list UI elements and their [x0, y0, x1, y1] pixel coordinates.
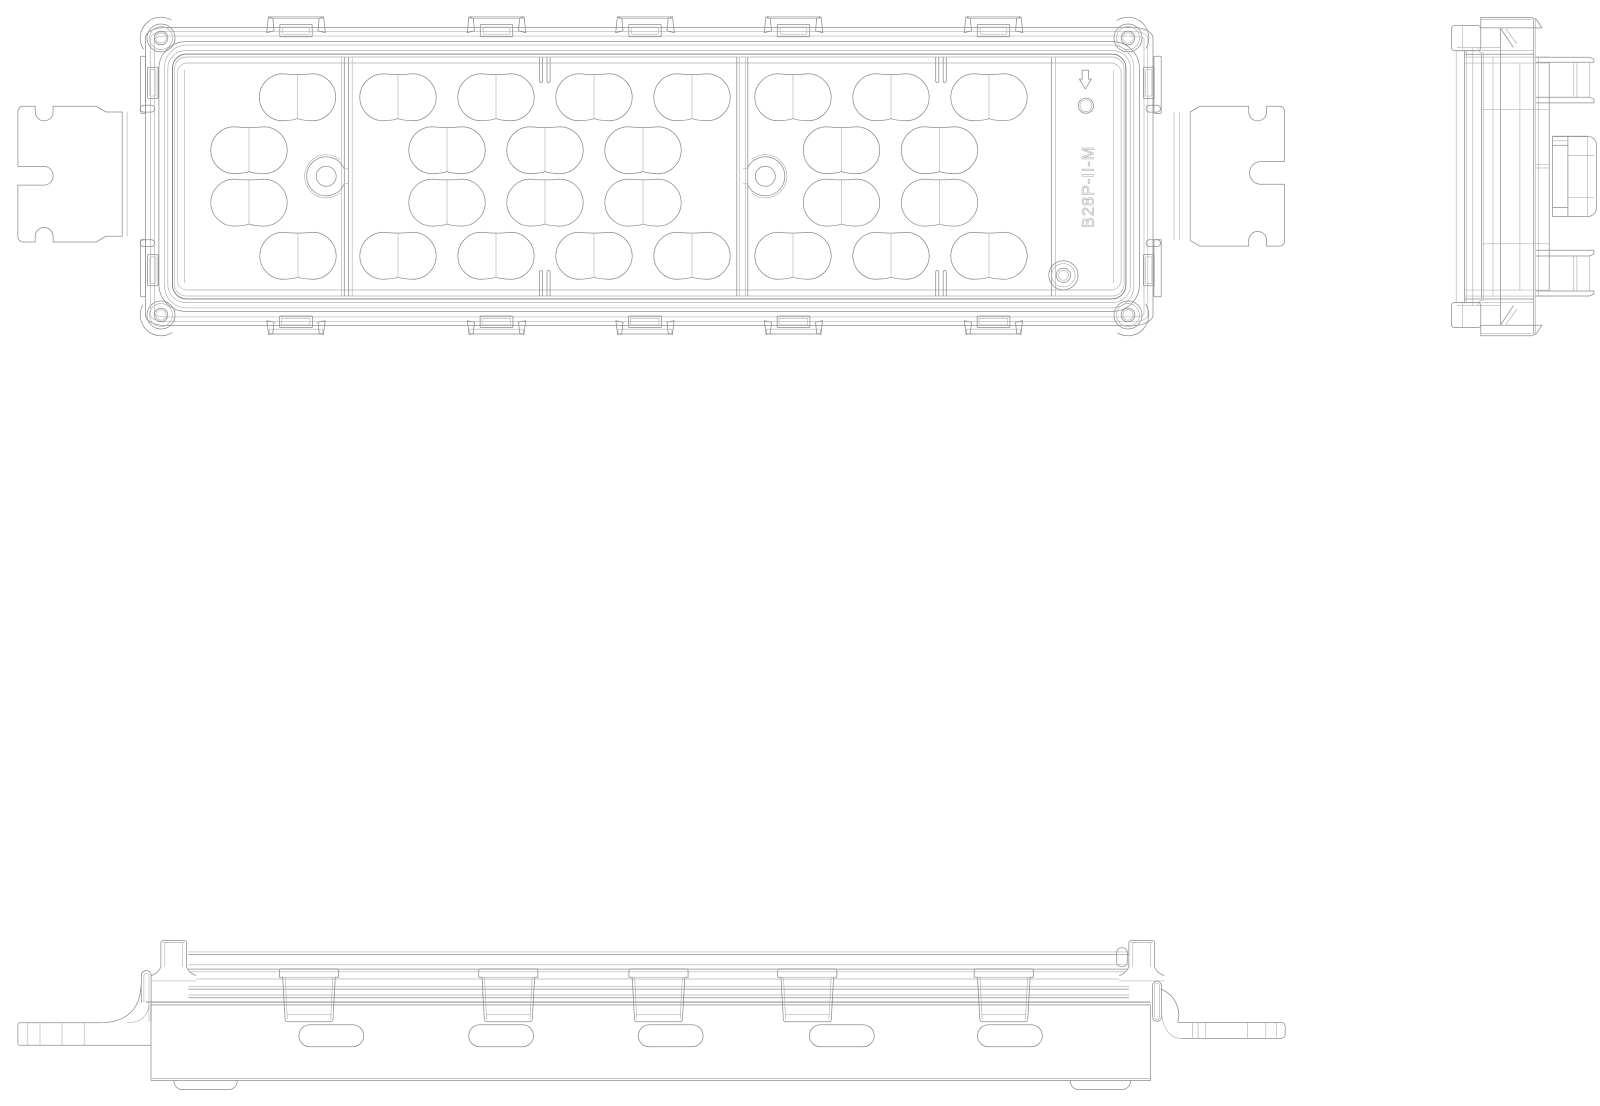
svg-text:B28P-II-M: B28P-II-M [1079, 146, 1097, 228]
